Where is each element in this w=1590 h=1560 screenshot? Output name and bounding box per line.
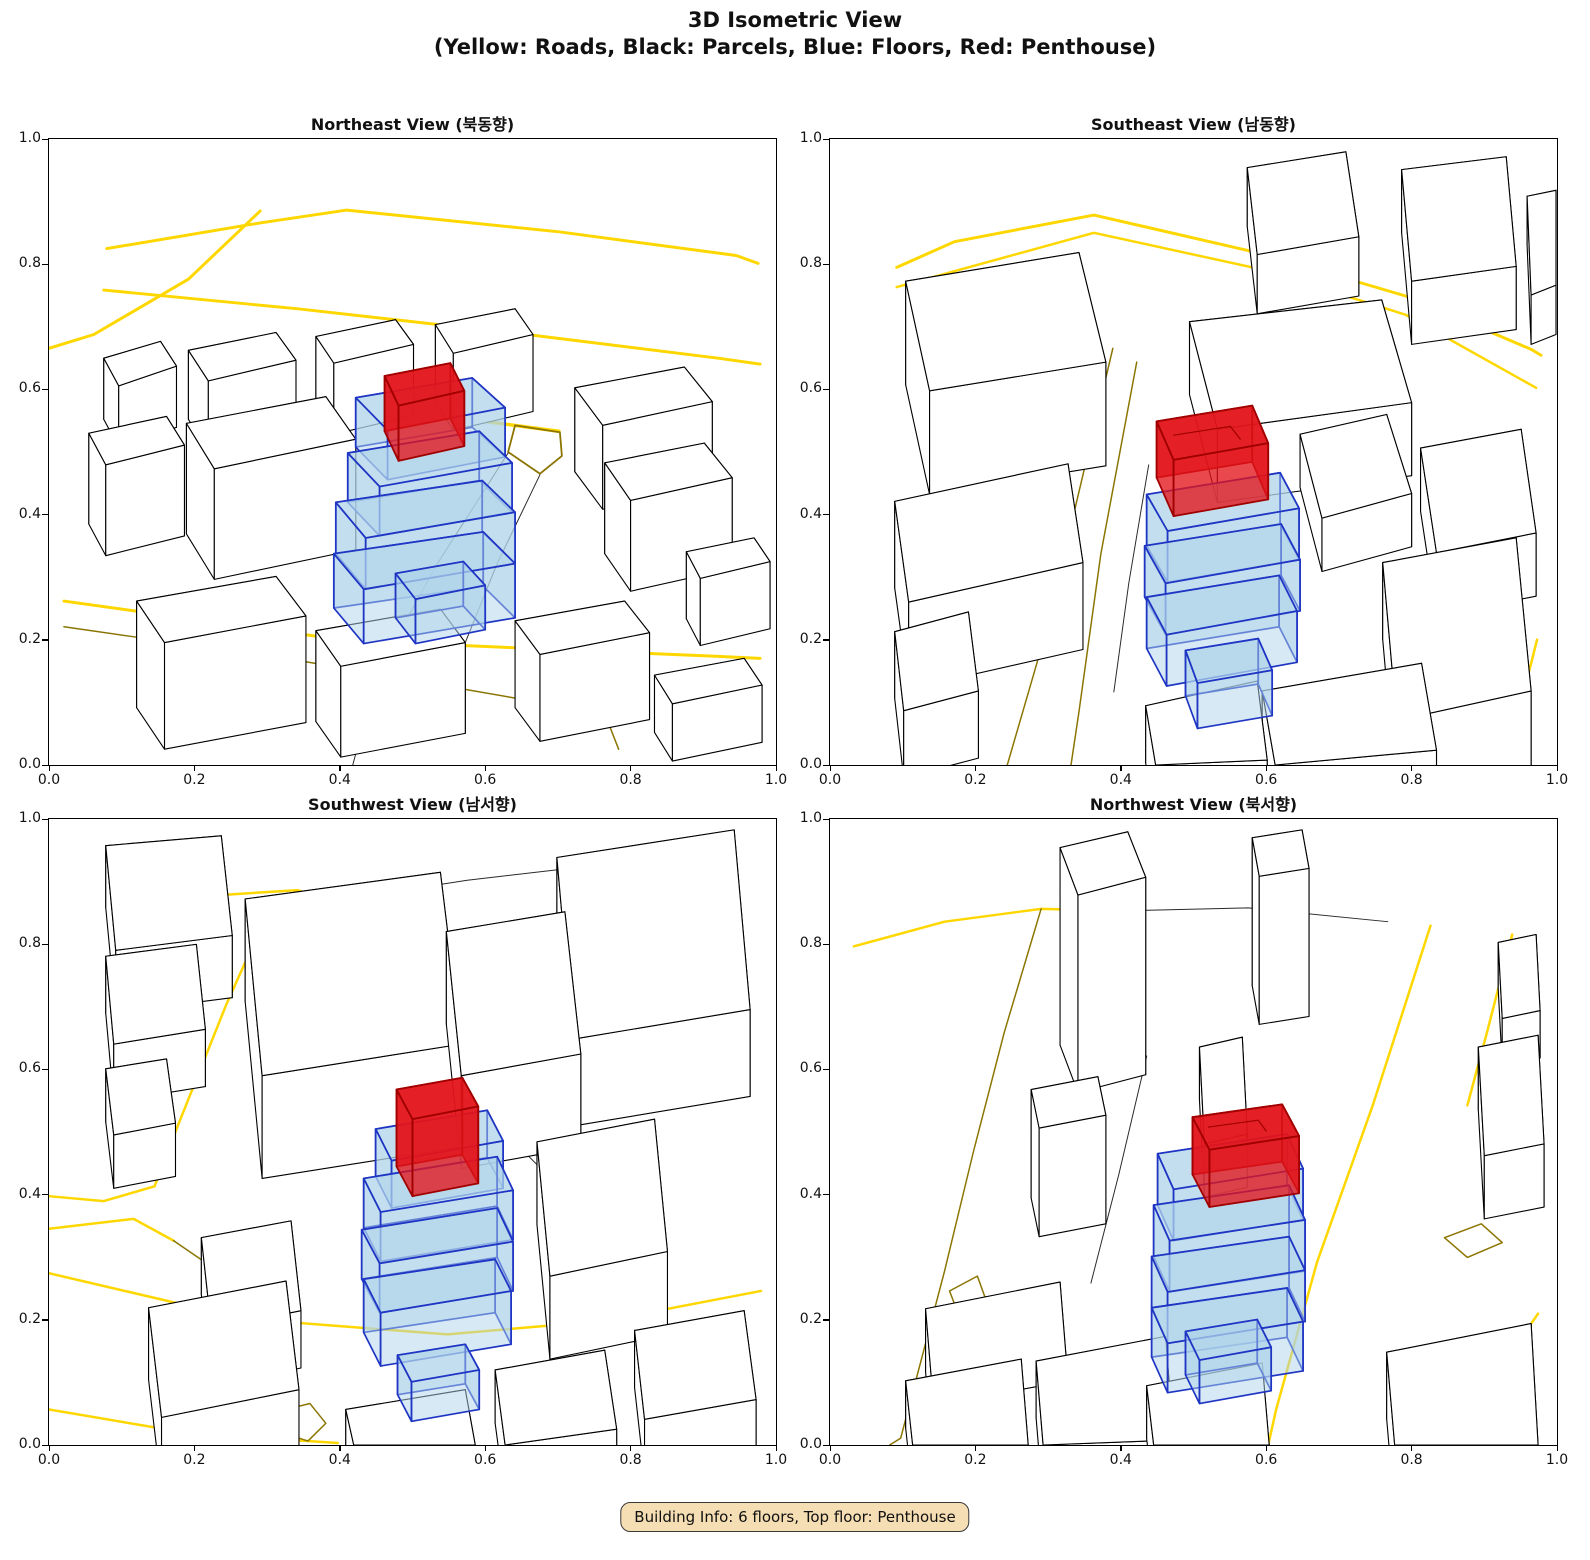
- y-tick-mark: [823, 944, 829, 945]
- y-tick-label: 1.0: [1, 130, 41, 146]
- y-tick-mark: [42, 944, 48, 945]
- y-tick-label: 0.4: [782, 1186, 822, 1202]
- x-tick-mark: [830, 1445, 831, 1451]
- scene-northeast-svg: [49, 139, 776, 765]
- y-tick-mark: [42, 765, 48, 766]
- y-tick-mark: [823, 389, 829, 390]
- x-tick-mark: [630, 1445, 631, 1451]
- x-tick-label: 0.4: [1099, 772, 1143, 788]
- scene-northwest-svg: [830, 819, 1557, 1445]
- subplot-northeast-title: Northeast View (북동향): [49, 111, 776, 135]
- parcel-ground-lines: [1114, 465, 1149, 692]
- x-tick-label: 0.8: [609, 772, 653, 788]
- subplot-southwest-title: Southwest View (남서향): [49, 791, 776, 815]
- y-tick-label: 0.4: [1, 1186, 41, 1202]
- y-tick-mark: [42, 1319, 48, 1320]
- x-tick-label: 0.0: [808, 1452, 852, 1468]
- subplot-southwest: Southwest View (남서향) 0.00.20.40.60.81.00…: [48, 818, 777, 1446]
- y-tick-label: 0.4: [1, 506, 41, 522]
- y-tick-mark: [823, 765, 829, 766]
- x-tick-label: 0.4: [318, 772, 362, 788]
- x-tick-label: 0.6: [1244, 772, 1288, 788]
- scene-southeast-svg: [830, 139, 1557, 765]
- y-tick-label: 0.6: [782, 1060, 822, 1076]
- x-tick-mark: [1411, 1445, 1412, 1451]
- penthouse-box: [397, 1078, 479, 1196]
- penthouse-box: [1193, 1104, 1300, 1207]
- y-tick-label: 1.0: [782, 810, 822, 826]
- x-tick-label: 1.0: [1535, 1452, 1579, 1468]
- y-tick-mark: [42, 264, 48, 265]
- x-tick-mark: [49, 765, 50, 771]
- y-tick-label: 0.0: [1, 1436, 41, 1452]
- x-tick-label: 0.0: [808, 772, 852, 788]
- x-tick-mark: [1120, 1445, 1121, 1451]
- x-tick-label: 0.2: [953, 772, 997, 788]
- subplot-southeast: Southeast View (남동향) 0.00.20.40.60.81.00…: [829, 138, 1558, 766]
- x-tick-label: 0.8: [1390, 1452, 1434, 1468]
- x-tick-mark: [194, 765, 195, 771]
- x-tick-mark: [1557, 765, 1558, 771]
- y-tick-label: 0.4: [782, 506, 822, 522]
- y-tick-mark: [823, 1069, 829, 1070]
- scene-southwest-svg: [49, 819, 776, 1445]
- penthouse-box: [1157, 406, 1269, 517]
- y-tick-mark: [823, 1194, 829, 1195]
- y-tick-mark: [823, 639, 829, 640]
- y-tick-mark: [823, 514, 829, 515]
- x-tick-mark: [1557, 1445, 1558, 1451]
- y-tick-label: 0.2: [1, 1311, 41, 1327]
- y-tick-label: 0.2: [1, 631, 41, 647]
- y-tick-label: 0.2: [782, 1311, 822, 1327]
- y-tick-mark: [823, 1319, 829, 1320]
- x-tick-label: 1.0: [754, 1452, 798, 1468]
- x-tick-mark: [630, 765, 631, 771]
- y-tick-mark: [823, 139, 829, 140]
- y-tick-mark: [42, 389, 48, 390]
- y-tick-label: 0.8: [1, 935, 41, 951]
- y-tick-label: 0.0: [1, 756, 41, 772]
- x-tick-label: 0.6: [463, 772, 507, 788]
- x-tick-mark: [975, 1445, 976, 1451]
- y-tick-mark: [823, 819, 829, 820]
- x-tick-mark: [776, 765, 777, 771]
- y-tick-mark: [42, 1194, 48, 1195]
- x-tick-label: 0.2: [953, 1452, 997, 1468]
- figure-title-line1: 3D Isometric View: [0, 7, 1590, 34]
- x-tick-mark: [485, 1445, 486, 1451]
- x-tick-mark: [776, 1445, 777, 1451]
- penthouse-box: [385, 363, 465, 461]
- figure-title: 3D Isometric View (Yellow: Roads, Black:…: [0, 7, 1590, 61]
- subplot-southeast-title: Southeast View (남동향): [830, 111, 1557, 135]
- y-tick-mark: [42, 639, 48, 640]
- x-tick-label: 1.0: [754, 772, 798, 788]
- y-tick-label: 0.0: [782, 1436, 822, 1452]
- y-tick-mark: [42, 1445, 48, 1446]
- y-tick-mark: [42, 819, 48, 820]
- y-tick-mark: [823, 264, 829, 265]
- x-tick-mark: [194, 1445, 195, 1451]
- y-tick-label: 0.2: [782, 631, 822, 647]
- x-tick-label: 0.8: [1390, 772, 1434, 788]
- y-tick-label: 1.0: [1, 810, 41, 826]
- x-tick-mark: [485, 765, 486, 771]
- y-tick-label: 1.0: [782, 130, 822, 146]
- x-tick-mark: [49, 1445, 50, 1451]
- y-tick-mark: [42, 514, 48, 515]
- x-tick-mark: [1266, 765, 1267, 771]
- x-tick-label: 0.2: [172, 772, 216, 788]
- x-tick-mark: [1411, 765, 1412, 771]
- y-tick-label: 0.6: [1, 1060, 41, 1076]
- y-tick-label: 0.8: [782, 935, 822, 951]
- x-tick-label: 0.4: [318, 1452, 362, 1468]
- y-tick-label: 0.8: [782, 255, 822, 271]
- x-tick-label: 0.6: [1244, 1452, 1288, 1468]
- x-tick-mark: [1266, 1445, 1267, 1451]
- y-tick-mark: [42, 1069, 48, 1070]
- x-tick-label: 0.2: [172, 1452, 216, 1468]
- x-tick-label: 0.0: [27, 1452, 71, 1468]
- x-tick-label: 0.0: [27, 772, 71, 788]
- x-tick-mark: [975, 765, 976, 771]
- building-info-box: Building Info: 6 floors, Top floor: Pent…: [620, 1502, 969, 1532]
- y-tick-label: 0.8: [1, 255, 41, 271]
- y-tick-mark: [42, 139, 48, 140]
- y-tick-label: 0.0: [782, 756, 822, 772]
- figure-title-line2: (Yellow: Roads, Black: Parcels, Blue: Fl…: [0, 34, 1590, 61]
- x-tick-mark: [1120, 765, 1121, 771]
- x-tick-mark: [339, 1445, 340, 1451]
- subplot-northwest-title: Northwest View (북서향): [830, 791, 1557, 815]
- x-tick-mark: [830, 765, 831, 771]
- y-tick-label: 0.6: [1, 380, 41, 396]
- subplot-northwest: Northwest View (북서향) 0.00.20.40.60.81.00…: [829, 818, 1558, 1446]
- x-tick-label: 1.0: [1535, 772, 1579, 788]
- x-tick-label: 0.8: [609, 1452, 653, 1468]
- x-tick-label: 0.4: [1099, 1452, 1143, 1468]
- subplot-northeast: Northeast View (북동향) 0.00.20.40.60.81.00…: [48, 138, 777, 766]
- x-tick-mark: [339, 765, 340, 771]
- x-tick-label: 0.6: [463, 1452, 507, 1468]
- y-tick-label: 0.6: [782, 380, 822, 396]
- y-tick-mark: [823, 1445, 829, 1446]
